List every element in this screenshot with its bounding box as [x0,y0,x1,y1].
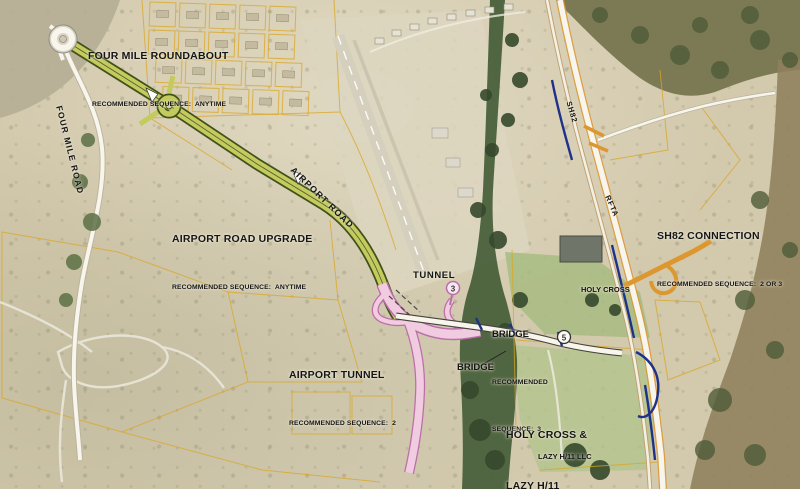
annotation-airport-tunnel: AIRPORT TUNNEL RECOMMENDED SEQUENCE: 2 [289,331,396,467]
aerial-plan-map: 3 5 FOUR MILE ROUNDABOUT RECOMMENDED SEQ… [0,0,800,489]
annotation-title-line1: HOLY CROSS & [506,429,587,442]
annotation-title: BRIDGE [492,329,548,340]
annotation-title: AIRPORT ROAD UPGRADE [172,233,313,246]
annotation-bridge-lower: BRIDGE [457,362,494,373]
annotation-airport-road-upgrade: AIRPORT ROAD UPGRADE RECOMMENDED SEQUENC… [172,195,313,331]
substation [560,236,602,262]
sequence-marker-5: 5 [558,331,571,344]
tunnel-sequence-number: 3 [451,285,456,294]
annotation-holy-cross-lazy-h11: HOLY CROSS & LAZY H/11 RECOMMENDED SEQUE… [506,391,587,489]
annotation-lazy-h11-llc: LAZY H/11 LLC [538,452,592,461]
annotation-tunnel: TUNNEL [413,270,455,281]
annotation-subtitle: RECOMMENDED SEQUENCE: ANYTIME [172,284,313,292]
annotation-title: SH82 CONNECTION [657,230,782,243]
annotation-subtitle: RECOMMENDED SEQUENCE: ANYTIME [92,101,229,109]
annotation-title-line2: LAZY H/11 [506,480,587,489]
annotation-title: FOUR MILE ROUNDABOUT [88,50,229,63]
annotation-subtitle: RECOMMENDED SEQUENCE: 2 OR 3 [657,281,782,289]
annotation-subtitle: RECOMMENDED SEQUENCE: 2 [289,420,396,428]
annotation-holy-cross: HOLY CROSS [581,285,630,294]
annotation-sh82-connection: SH82 CONNECTION RECOMMENDED SEQUENCE: 2 … [657,192,782,328]
annotation-four-mile-roundabout: FOUR MILE ROUNDABOUT RECOMMENDED SEQUENC… [88,12,229,148]
bridge-sequence-number: 5 [562,334,567,343]
annotation-subtitle-line1: RECOMMENDED [492,379,548,387]
annotation-title: AIRPORT TUNNEL [289,369,396,382]
